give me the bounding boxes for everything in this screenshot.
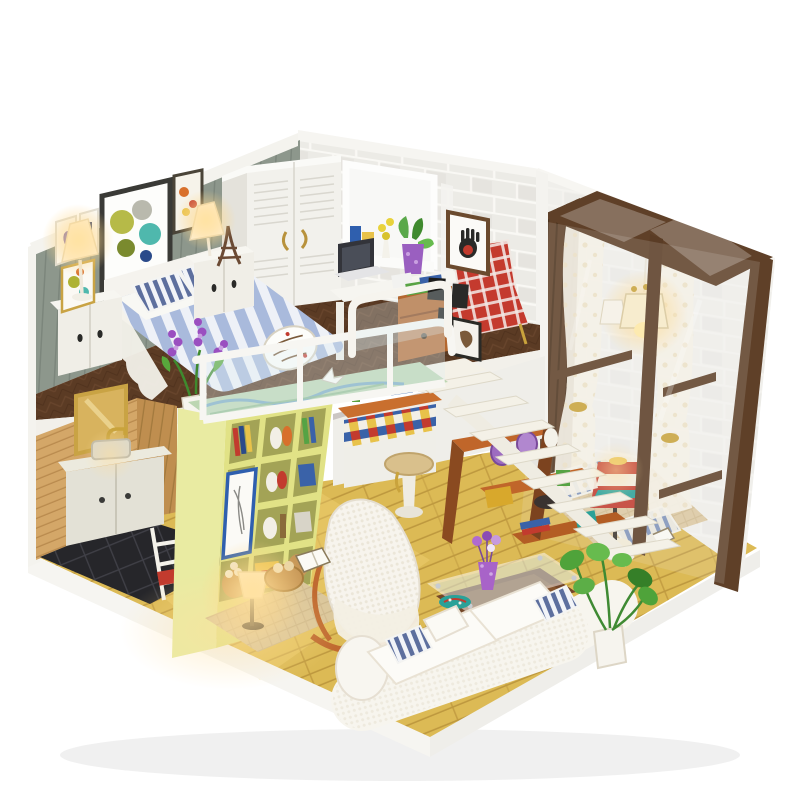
- small-frame: [451, 283, 469, 308]
- dollhouse-illustration: [0, 0, 800, 800]
- sofa-armrest: [336, 636, 388, 700]
- white-vase: [544, 428, 558, 448]
- handprint-frame: [448, 212, 488, 274]
- product-photo-stage: [0, 0, 800, 800]
- horse-photo-frame: [452, 318, 480, 360]
